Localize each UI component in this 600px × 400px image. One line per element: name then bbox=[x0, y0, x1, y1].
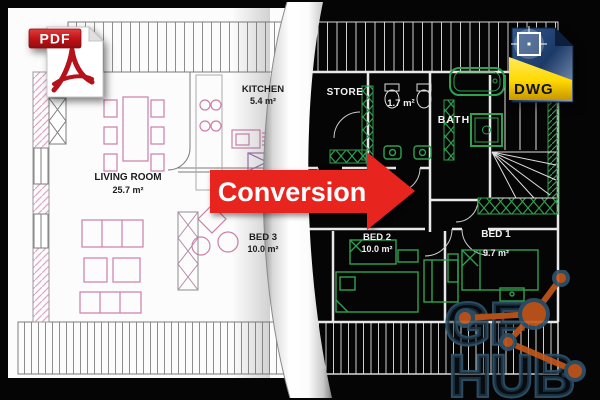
bed3-label: BED 3 10.0 m² bbox=[236, 232, 290, 255]
kitchen-label: KITCHEN 5.4 m² bbox=[232, 84, 294, 107]
room-name: BED 3 bbox=[236, 232, 290, 244]
bed2-label: BED 2 10.0 m² bbox=[350, 232, 404, 255]
room-name: BED 1 bbox=[466, 229, 526, 242]
wc-area-label: 1.7 m² bbox=[378, 98, 424, 110]
bed1-label: BED 1 9.7 m² bbox=[466, 229, 526, 259]
living-room-label: LIVING ROOM 25.7 m² bbox=[84, 172, 172, 196]
room-name: STORE bbox=[322, 87, 368, 100]
room-area: 9.7 m² bbox=[466, 248, 526, 259]
bath-label: BATH bbox=[430, 114, 478, 127]
room-name: BED 2 bbox=[350, 232, 404, 244]
pdf-banner-label: PDF bbox=[40, 31, 71, 47]
conversion-arrow-label: Conversion bbox=[218, 177, 367, 207]
room-area: 25.7 m² bbox=[84, 185, 172, 196]
dwg-file-icon: DWG bbox=[505, 24, 580, 106]
pdf-to-dwg-conversion-graphic: Conversion PDF DWG LIVING ROOM 25.7 m² K… bbox=[0, 0, 600, 400]
room-area: 1.7 m² bbox=[378, 98, 424, 110]
store-label: STORE bbox=[322, 87, 368, 100]
pdf-file-icon: PDF bbox=[25, 22, 110, 102]
gfx-hub-watermark: GF HUB bbox=[425, 270, 600, 400]
dwg-banner-label: DWG bbox=[514, 81, 554, 98]
room-name: KITCHEN bbox=[232, 84, 294, 96]
pdf-page-fold bbox=[89, 27, 103, 41]
room-name: BATH bbox=[430, 114, 478, 127]
watermark-line2: HUB bbox=[449, 344, 575, 400]
room-area: 10.0 m² bbox=[350, 244, 404, 255]
room-name: LIVING ROOM bbox=[84, 172, 172, 185]
conversion-arrow: Conversion bbox=[195, 140, 425, 240]
room-area: 5.4 m² bbox=[232, 96, 294, 107]
room-area: 10.0 m² bbox=[236, 244, 290, 255]
